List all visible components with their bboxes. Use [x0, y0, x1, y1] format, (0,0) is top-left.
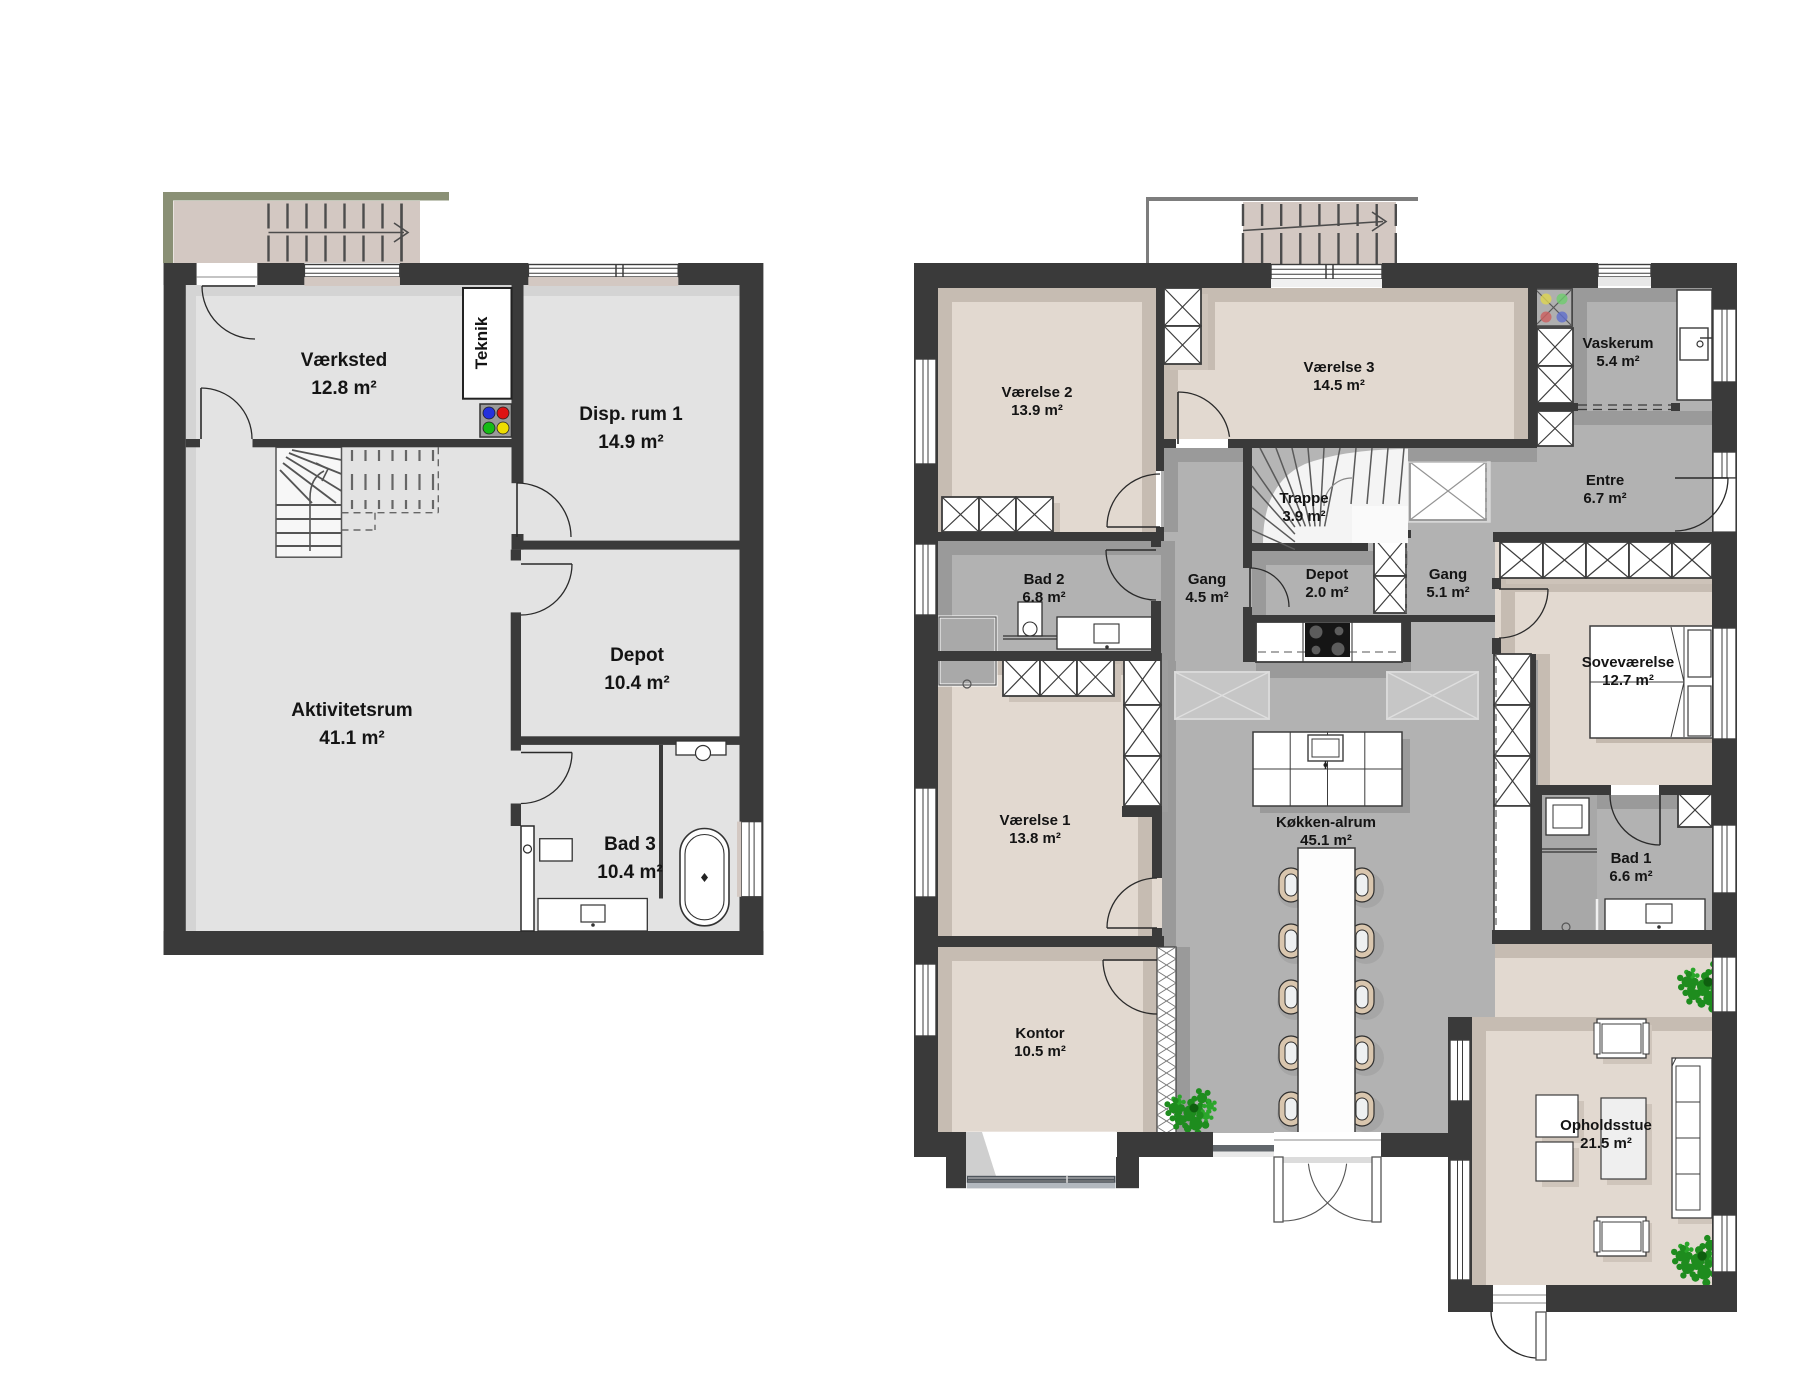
svg-text:10.5 m²: 10.5 m² — [1014, 1043, 1066, 1060]
svg-text:3.9 m²: 3.9 m² — [1282, 508, 1325, 525]
svg-text:5.4 m²: 5.4 m² — [1596, 353, 1639, 370]
svg-text:Værksted: Værksted — [301, 350, 388, 371]
svg-text:12.7 m²: 12.7 m² — [1602, 672, 1654, 689]
svg-text:Køkken-alrum: Køkken-alrum — [1276, 814, 1376, 831]
svg-text:6.8 m²: 6.8 m² — [1022, 589, 1065, 606]
svg-text:21.5 m²: 21.5 m² — [1580, 1135, 1632, 1152]
svg-text:Trappe: Trappe — [1279, 490, 1328, 507]
svg-text:Bad 1: Bad 1 — [1611, 850, 1652, 867]
svg-text:2.0 m²: 2.0 m² — [1305, 584, 1348, 601]
svg-text:Depot: Depot — [610, 645, 665, 666]
svg-text:Værelse 3: Værelse 3 — [1304, 359, 1375, 376]
svg-text:Værelse 1: Værelse 1 — [1000, 812, 1071, 829]
svg-text:14.9 m²: 14.9 m² — [598, 432, 663, 453]
svg-text:10.4 m²: 10.4 m² — [597, 862, 662, 883]
svg-text:14.5 m²: 14.5 m² — [1313, 377, 1365, 394]
svg-text:Værelse 2: Værelse 2 — [1002, 384, 1073, 401]
svg-text:Vaskerum: Vaskerum — [1583, 335, 1654, 352]
svg-text:41.1 m²: 41.1 m² — [319, 728, 384, 749]
svg-text:Disp. rum 1: Disp. rum 1 — [579, 404, 683, 425]
svg-text:Aktivitetsrum: Aktivitetsrum — [291, 700, 412, 721]
svg-text:12.8 m²: 12.8 m² — [311, 378, 376, 399]
svg-text:6.7 m²: 6.7 m² — [1583, 490, 1626, 507]
svg-text:Bad 2: Bad 2 — [1024, 571, 1065, 588]
svg-text:13.9 m²: 13.9 m² — [1011, 402, 1063, 419]
svg-text:10.4 m²: 10.4 m² — [604, 673, 669, 694]
svg-text:Gang: Gang — [1188, 571, 1226, 588]
svg-text:Gang: Gang — [1429, 566, 1467, 583]
svg-text:5.1 m²: 5.1 m² — [1426, 584, 1469, 601]
svg-text:Teknik: Teknik — [472, 316, 491, 369]
svg-text:13.8 m²: 13.8 m² — [1009, 830, 1061, 847]
svg-text:Opholdsstue: Opholdsstue — [1560, 1117, 1652, 1134]
svg-text:Soveværelse: Soveværelse — [1582, 654, 1675, 671]
svg-text:45.1 m²: 45.1 m² — [1300, 832, 1352, 849]
svg-text:Bad 3: Bad 3 — [604, 834, 656, 855]
svg-text:Kontor: Kontor — [1015, 1025, 1064, 1042]
svg-text:4.5 m²: 4.5 m² — [1185, 589, 1228, 606]
svg-text:6.6 m²: 6.6 m² — [1609, 868, 1652, 885]
svg-text:Depot: Depot — [1306, 566, 1349, 583]
svg-text:Entre: Entre — [1586, 472, 1624, 489]
